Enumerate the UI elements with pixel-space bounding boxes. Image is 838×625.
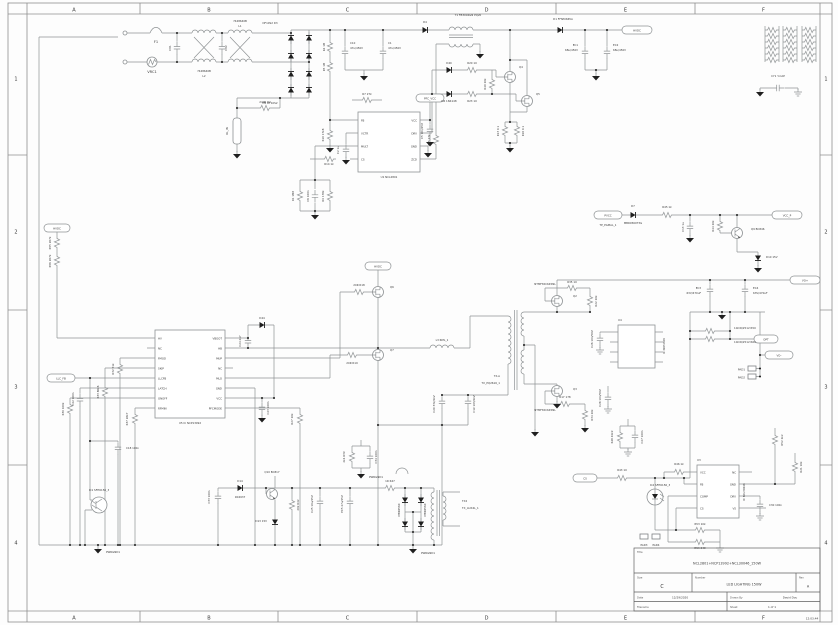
schematic-label: Q6 bbox=[390, 285, 394, 289]
schematic-label: CS bbox=[700, 506, 704, 510]
schematic-label: Q4 bbox=[519, 65, 523, 69]
zener-d13 bbox=[272, 516, 278, 528]
schematic-label: F1 bbox=[154, 40, 158, 44]
schematic-label: VCC bbox=[216, 396, 222, 400]
sync-mosfet-q2 bbox=[552, 296, 563, 307]
zone-label: 2 bbox=[824, 230, 827, 236]
resonant-cap-c19 bbox=[465, 396, 471, 409]
schematic-label: CS bbox=[583, 476, 587, 480]
filename-caption: Filename bbox=[637, 605, 649, 609]
schematic-label: RFMIN bbox=[158, 406, 167, 410]
schematic-label: C25 10u/25V bbox=[310, 495, 314, 513]
shunt-r60 bbox=[703, 336, 717, 341]
schematic-label: T1 FB3004GN PQ20 bbox=[454, 13, 482, 17]
schematic-label: OPT bbox=[763, 337, 769, 341]
sheet-caption: Sheet bbox=[730, 605, 738, 609]
schematic-label: MLO bbox=[216, 376, 222, 380]
schematic-label: HVDC bbox=[633, 28, 641, 32]
schematic-label: C23 100n bbox=[266, 401, 270, 414]
aux-flyback-section bbox=[94, 450, 446, 554]
schematic-label: IC NCP4306 bbox=[662, 338, 666, 354]
vcc-rail-wires bbox=[622, 215, 772, 266]
schematic-label: NC bbox=[158, 346, 162, 350]
schematic-label: NTMFS5C645NL bbox=[534, 408, 556, 412]
schematic-label: MUP bbox=[216, 356, 222, 360]
schematic-label: LLC_FB bbox=[56, 376, 66, 380]
schematic-label: C6 100n bbox=[306, 190, 310, 202]
schematic-label: 7448640B bbox=[197, 69, 211, 73]
schematic-label: FB bbox=[700, 482, 704, 486]
schematic-label: C33 100n bbox=[207, 490, 211, 503]
schematic-label: EC2 bbox=[613, 43, 619, 47]
resonant-cap-c20 bbox=[439, 396, 445, 409]
schematic-label: DF10S2 D3 bbox=[262, 21, 277, 25]
schematic-label: D1 FFSP0665A bbox=[553, 17, 573, 21]
choke-coil bbox=[228, 30, 252, 33]
zone-label: 1 bbox=[824, 77, 827, 83]
schematic-label: PVCC bbox=[604, 213, 611, 217]
schematic-label: 1N4937 bbox=[235, 495, 246, 499]
gate-diode-d6 bbox=[443, 91, 455, 97]
schematic-label: R32 51k bbox=[111, 363, 115, 375]
zcd-resistor bbox=[433, 133, 438, 147]
sync-rect-section bbox=[552, 285, 656, 432]
zone-label: 3 bbox=[824, 385, 827, 391]
llc-mosfet-q6 bbox=[373, 287, 384, 298]
schematic-label: EC1 bbox=[573, 43, 579, 47]
schematic-label: U4 bbox=[618, 318, 622, 322]
shunt-r50 bbox=[703, 328, 717, 333]
rev-value: A bbox=[807, 585, 810, 589]
inrush-limiter bbox=[233, 118, 241, 144]
schematic-label: 7448640B bbox=[233, 19, 247, 23]
schematic-label: L3 RML_1 bbox=[436, 338, 449, 342]
schematic-label: GND bbox=[216, 386, 222, 390]
zone-label: 2 bbox=[14, 230, 17, 236]
boost-diode-d1 bbox=[554, 27, 566, 33]
schematic-label: PAD3 bbox=[640, 543, 647, 547]
optocoupler-ic1 bbox=[91, 497, 107, 513]
schematic-label: C28 10n/50V bbox=[598, 389, 602, 407]
zone-label: D bbox=[485, 7, 489, 13]
schematic-label: TP_PGMAL_1 bbox=[598, 223, 616, 227]
rev-caption: Rev bbox=[799, 576, 804, 580]
schematic-label: L2 bbox=[202, 74, 205, 78]
schematic-label: D10 15V bbox=[766, 255, 778, 259]
schematic-label: 1R R47 bbox=[385, 479, 395, 483]
schematic-label: ZCD bbox=[411, 157, 417, 161]
title-block-grid bbox=[634, 573, 820, 611]
schematic-label: R55 267k bbox=[48, 236, 52, 249]
schematic-label: R1 1M8 bbox=[291, 191, 295, 201]
zone-label: F bbox=[762, 615, 765, 621]
schematic-label: IC2 SFH6156_3 bbox=[650, 483, 671, 487]
schematic-label: R52 2k2 bbox=[780, 434, 784, 445]
schematic-label: VO+ bbox=[802, 278, 808, 282]
schematic-label: R23 10 bbox=[467, 99, 477, 103]
number-caption: Number bbox=[695, 576, 706, 580]
schematic-label: VCTR bbox=[361, 131, 368, 135]
schematic-label: R48 49k9 bbox=[610, 430, 614, 443]
schematic-label: HB bbox=[218, 346, 222, 350]
schematic-label: R46 1k bbox=[674, 462, 684, 466]
ncl30046-feedback-section bbox=[615, 430, 798, 552]
output-cap-ec4 bbox=[742, 284, 748, 297]
date-caption: Date bbox=[637, 596, 644, 600]
schematic-label: C10 bbox=[350, 41, 356, 45]
drawn-by-caption: Drawn By bbox=[730, 596, 743, 600]
schematic-label: R4 1M bbox=[322, 42, 326, 51]
main-transformer bbox=[508, 312, 539, 437]
schematic-label: ONOFF bbox=[158, 396, 168, 400]
schematic-label: R35 10 bbox=[567, 280, 577, 284]
zone-label: E bbox=[624, 615, 627, 621]
schematic-label: NC bbox=[732, 470, 736, 474]
schematic-label: R44 20k bbox=[711, 220, 715, 232]
pad2 bbox=[748, 374, 756, 379]
schematic-label: PAD4 bbox=[652, 543, 659, 547]
transistor-q10 bbox=[267, 489, 278, 500]
schematic-label: R5 1M bbox=[322, 62, 326, 71]
schematic-label: C26 10n/50V bbox=[590, 330, 594, 348]
schematic-label: MBR0560T3G bbox=[624, 221, 642, 225]
bulk-cap-ec2 bbox=[604, 46, 610, 59]
schematic-label: Q3 bbox=[573, 387, 577, 391]
schematic-label: C30 100n bbox=[769, 503, 782, 507]
schematic-label: R10 17k8 bbox=[321, 128, 325, 141]
bridge-wires bbox=[237, 30, 313, 152]
varistor bbox=[147, 57, 157, 67]
schematic-label: CS bbox=[361, 157, 365, 161]
schematic-label: R20 10 bbox=[467, 61, 477, 65]
schematic-label: R34 20k bbox=[590, 409, 594, 421]
schematic-label: VBOOT bbox=[212, 336, 222, 340]
schematic-label: 10mR/2512 R50 bbox=[734, 326, 756, 330]
schematic-label: C18 100n bbox=[126, 446, 139, 450]
schematic-label: D13 15V bbox=[255, 519, 267, 523]
schematic-label: D4 bbox=[423, 20, 427, 24]
bulk-cap-c10 bbox=[342, 46, 348, 59]
resistor-r47 bbox=[383, 485, 397, 490]
zone-label: B bbox=[207, 615, 211, 621]
schematic-label: U3 bbox=[697, 458, 701, 462]
schematic-label: VCC bbox=[411, 118, 417, 122]
schematic-label: R9 178k bbox=[321, 190, 325, 202]
schematic-label: 10mR/2512 R60 bbox=[734, 340, 756, 344]
schematic-sheet: 12:03:44 bbox=[0, 0, 838, 625]
emi-wires bbox=[127, 27, 309, 62]
schematic-label: DRV bbox=[730, 494, 736, 498]
schematic-label: PFCMODE bbox=[209, 406, 223, 410]
schematic-label: Q2 bbox=[573, 294, 577, 298]
zone-label: 4 bbox=[824, 541, 827, 547]
number-value: LED LIGHTING 150W bbox=[727, 583, 763, 587]
ic-ncp13992 bbox=[155, 330, 225, 418]
diode-d7 bbox=[627, 212, 639, 218]
schematic-label: R43 10 bbox=[617, 468, 627, 472]
zone-label: E bbox=[624, 7, 627, 13]
schematic-label: U5 IC NCP13992 bbox=[179, 421, 201, 425]
schematic-label: PWRGND1 bbox=[369, 475, 383, 479]
zone-label: 3 bbox=[14, 385, 17, 391]
schematic-label: D14 bbox=[237, 479, 243, 483]
zone-label: B bbox=[207, 7, 211, 13]
schematic-label: LATCH bbox=[158, 386, 167, 390]
schematic-label: D7 bbox=[631, 204, 635, 208]
schematic-label: Q7 bbox=[390, 348, 394, 352]
schematic-label: 240R R2 bbox=[259, 100, 271, 104]
pfc-inductor bbox=[449, 27, 473, 30]
y-capacitor bbox=[772, 85, 785, 91]
schematic-label: MULT bbox=[361, 144, 368, 148]
choke-coil bbox=[192, 59, 216, 62]
title-caption: Title bbox=[637, 550, 643, 554]
schematic-label: R16 0.1 bbox=[521, 126, 525, 137]
schematic-label: VS bbox=[732, 506, 736, 510]
resistor-r2 bbox=[258, 105, 272, 110]
schematic-canvas: 12:03:44 bbox=[0, 0, 838, 625]
ncl30046-wires bbox=[597, 419, 795, 545]
zener-d10 bbox=[755, 252, 761, 264]
diode-d4 bbox=[419, 27, 431, 33]
schematic-label: C22 100n bbox=[71, 392, 75, 405]
schematic-label: Q5 bbox=[536, 92, 540, 96]
schematic-label: Q9 BC846 bbox=[751, 227, 765, 231]
resistor-r7 bbox=[360, 97, 374, 102]
schematic-label: Q10 BC817 bbox=[264, 470, 279, 474]
schematic-label: R27 20k bbox=[290, 413, 294, 425]
print-time: 12:03:44 bbox=[806, 616, 819, 620]
schematic-label: CX2 bbox=[224, 45, 228, 51]
size-value: C bbox=[660, 584, 664, 590]
schematic-label: 63V/470uF bbox=[753, 291, 768, 295]
schematic-label: C34 100n bbox=[374, 450, 378, 463]
schematic-label: R14 1k bbox=[324, 162, 334, 166]
schematic-label: EC3 bbox=[696, 286, 702, 290]
schematic-label: IC1 SFH6156_3 bbox=[89, 488, 110, 492]
schematic-label: VRC1 bbox=[147, 70, 157, 74]
zone-label: C bbox=[346, 7, 350, 13]
zone-label: C bbox=[346, 615, 350, 621]
schematic-label: PWRGND1 bbox=[106, 550, 120, 554]
schematic-label: 20R R19 bbox=[346, 361, 358, 365]
schematic-label: 47u/450V bbox=[350, 46, 363, 50]
schematic-label: R37 28k7 bbox=[125, 412, 129, 425]
x-capacitor-cx1 bbox=[174, 42, 180, 55]
schematic-label: GND bbox=[730, 482, 736, 486]
schematic-label: 68u/450V bbox=[613, 48, 626, 52]
ic-ncp4306 bbox=[618, 325, 655, 368]
schematic-label: SKIP bbox=[158, 366, 164, 370]
size-caption: Size bbox=[637, 576, 643, 580]
schematic-label: R30 100k bbox=[61, 402, 65, 415]
schematic-label: VCC bbox=[700, 470, 706, 474]
zone-label: F bbox=[762, 7, 765, 13]
schematic-label: EC5 47u/25V bbox=[340, 495, 344, 513]
line-input-terminal bbox=[123, 31, 127, 35]
diode-d14 bbox=[234, 485, 246, 491]
schematic-label: C5 10n/25V bbox=[420, 123, 424, 139]
pfc-mosfet-q5 bbox=[522, 96, 533, 107]
schematic-label: C27 100n bbox=[640, 430, 644, 443]
pfc-fet-wires bbox=[428, 30, 527, 146]
resonant-inductor-l3 bbox=[430, 345, 454, 348]
schematic-label: TX_PQ2616_1 bbox=[481, 381, 501, 385]
zone-label: 4 bbox=[14, 541, 17, 547]
schematic-label: R22 20k bbox=[594, 295, 598, 307]
schematic-label: D40 bbox=[446, 61, 452, 65]
zone-label: A bbox=[72, 7, 76, 13]
schematic-label: CX1 bbox=[168, 45, 172, 51]
emi-input-section bbox=[123, 30, 252, 67]
aux-flyback-wires bbox=[218, 440, 460, 545]
schematic-label: PAD1 bbox=[738, 367, 745, 371]
zone-label: A bbox=[72, 615, 76, 621]
schematic-label: PAD2 bbox=[738, 375, 745, 379]
schematic-label: RL_IN bbox=[225, 127, 229, 135]
bridge-rectifier-section bbox=[233, 32, 312, 159]
schematic-label: D44 bbox=[259, 316, 265, 320]
bulk-cap-ec1 bbox=[582, 46, 588, 59]
schematic-label: 20k R42 bbox=[296, 499, 300, 510]
title-block: Title NCL2801+NCP13992+NCL30046_150W Siz… bbox=[634, 548, 820, 611]
resistor-r45 bbox=[660, 212, 674, 217]
pfc-aux-winding bbox=[449, 44, 473, 47]
schematic-label: 20R R18 bbox=[353, 283, 365, 287]
junction-dots bbox=[69, 29, 776, 546]
schematic-label: PWRGND1 bbox=[421, 551, 435, 555]
schematic-label: C24 4n7 bbox=[238, 335, 242, 347]
schematic-label: GND bbox=[411, 144, 417, 148]
schematic-label: HVDC bbox=[374, 264, 382, 268]
schematic-label: NC bbox=[218, 366, 222, 370]
schematic-label: CY1 Y-CAP bbox=[771, 74, 785, 78]
bootstrap-diode-d44 bbox=[256, 322, 268, 328]
schematic-label: NTMFS5C645NL bbox=[534, 282, 556, 286]
schematic-label: R7 27k bbox=[362, 92, 372, 96]
schematic-label: R15 27k bbox=[427, 134, 431, 146]
schematic-label: 47u/450V bbox=[388, 46, 401, 50]
schematic-label: TX_AUX4L_1 bbox=[461, 506, 479, 510]
zone-label: 1 bbox=[14, 77, 17, 83]
neutral-input-terminal bbox=[123, 60, 127, 64]
date-value: 12/29/2020 bbox=[672, 596, 688, 600]
sheet-value: 1 of 1 bbox=[768, 605, 776, 609]
schematic-label: TX2 bbox=[461, 499, 467, 503]
schematic-label: C19 103/2kV bbox=[472, 395, 476, 412]
bulk-cap-c1 bbox=[380, 46, 386, 59]
cs-resistor bbox=[322, 156, 336, 161]
schematic-label: R13 0.1 bbox=[496, 126, 500, 137]
drawn-by-value: David Dou bbox=[783, 596, 798, 600]
schematic-label: R17 178 bbox=[559, 395, 571, 399]
schematic-label: C13 1u bbox=[681, 222, 685, 232]
schematic-label: TX-A bbox=[493, 374, 500, 378]
schematic-label: L1 bbox=[238, 24, 241, 28]
pfc-mosfet-q4 bbox=[505, 72, 516, 83]
llc-mosfet-q7 bbox=[373, 350, 384, 361]
zone-label: D bbox=[485, 615, 489, 621]
output-cap-ec3 bbox=[707, 284, 713, 297]
resistor-r43 bbox=[615, 475, 629, 480]
schematic-label: FMOD bbox=[158, 356, 166, 360]
schematic-label: VO- bbox=[777, 353, 782, 357]
schematic-label: 68u/450V bbox=[565, 48, 578, 52]
choke-coil bbox=[228, 59, 252, 62]
schematic-label: PFC_VCC bbox=[424, 96, 436, 100]
schematic-label: VCC_P bbox=[783, 213, 792, 217]
schematic-label: MBR0560 bbox=[397, 503, 401, 516]
schematic-label: MBR0560 bbox=[423, 503, 427, 516]
schematic-label: R33 86k6 bbox=[96, 385, 100, 398]
gate-diode-d40 bbox=[443, 67, 455, 73]
schematic-label: R54 249 bbox=[694, 546, 706, 550]
schematic-label: R40 20k bbox=[483, 78, 487, 90]
schematic-label: R45 1k bbox=[662, 205, 672, 209]
schematic-label: R53 10k bbox=[694, 522, 706, 526]
schematic-label: EC4 bbox=[753, 286, 759, 290]
schematic-label: IC NCL30046 bbox=[742, 483, 746, 501]
pad4 bbox=[652, 534, 660, 539]
schematic-label: U1 NCL2801 bbox=[381, 175, 398, 179]
schematic-title: NCL2801+NCP13992+NCL30046_150W bbox=[693, 562, 762, 566]
schematic-label: COMP bbox=[700, 494, 708, 498]
schematic-label: C2 1u bbox=[336, 146, 340, 154]
pad3 bbox=[640, 534, 648, 539]
choke-coil bbox=[192, 30, 216, 33]
schematic-label: R56 267k bbox=[48, 254, 52, 267]
schematic-label: C20 332/2kV bbox=[432, 395, 436, 412]
pad1 bbox=[748, 366, 756, 371]
vcc-aux-section bbox=[627, 212, 762, 273]
transistor-q9 bbox=[732, 228, 743, 239]
schematic-label: C1 bbox=[388, 41, 392, 45]
schematic-label: 63V/470uF bbox=[686, 291, 701, 295]
schematic-label: D6 1N4148 bbox=[441, 99, 456, 103]
schematic-label: R21 10k bbox=[799, 461, 803, 473]
schematic-label: 2k4 R39 bbox=[342, 451, 346, 462]
schematic-label: LLCFB bbox=[158, 376, 166, 380]
schematic-label: FB bbox=[361, 118, 365, 122]
schematic-label: HVDC bbox=[53, 226, 61, 230]
schematic-label: DRV bbox=[411, 131, 417, 135]
schematic-label: HV bbox=[158, 336, 162, 340]
